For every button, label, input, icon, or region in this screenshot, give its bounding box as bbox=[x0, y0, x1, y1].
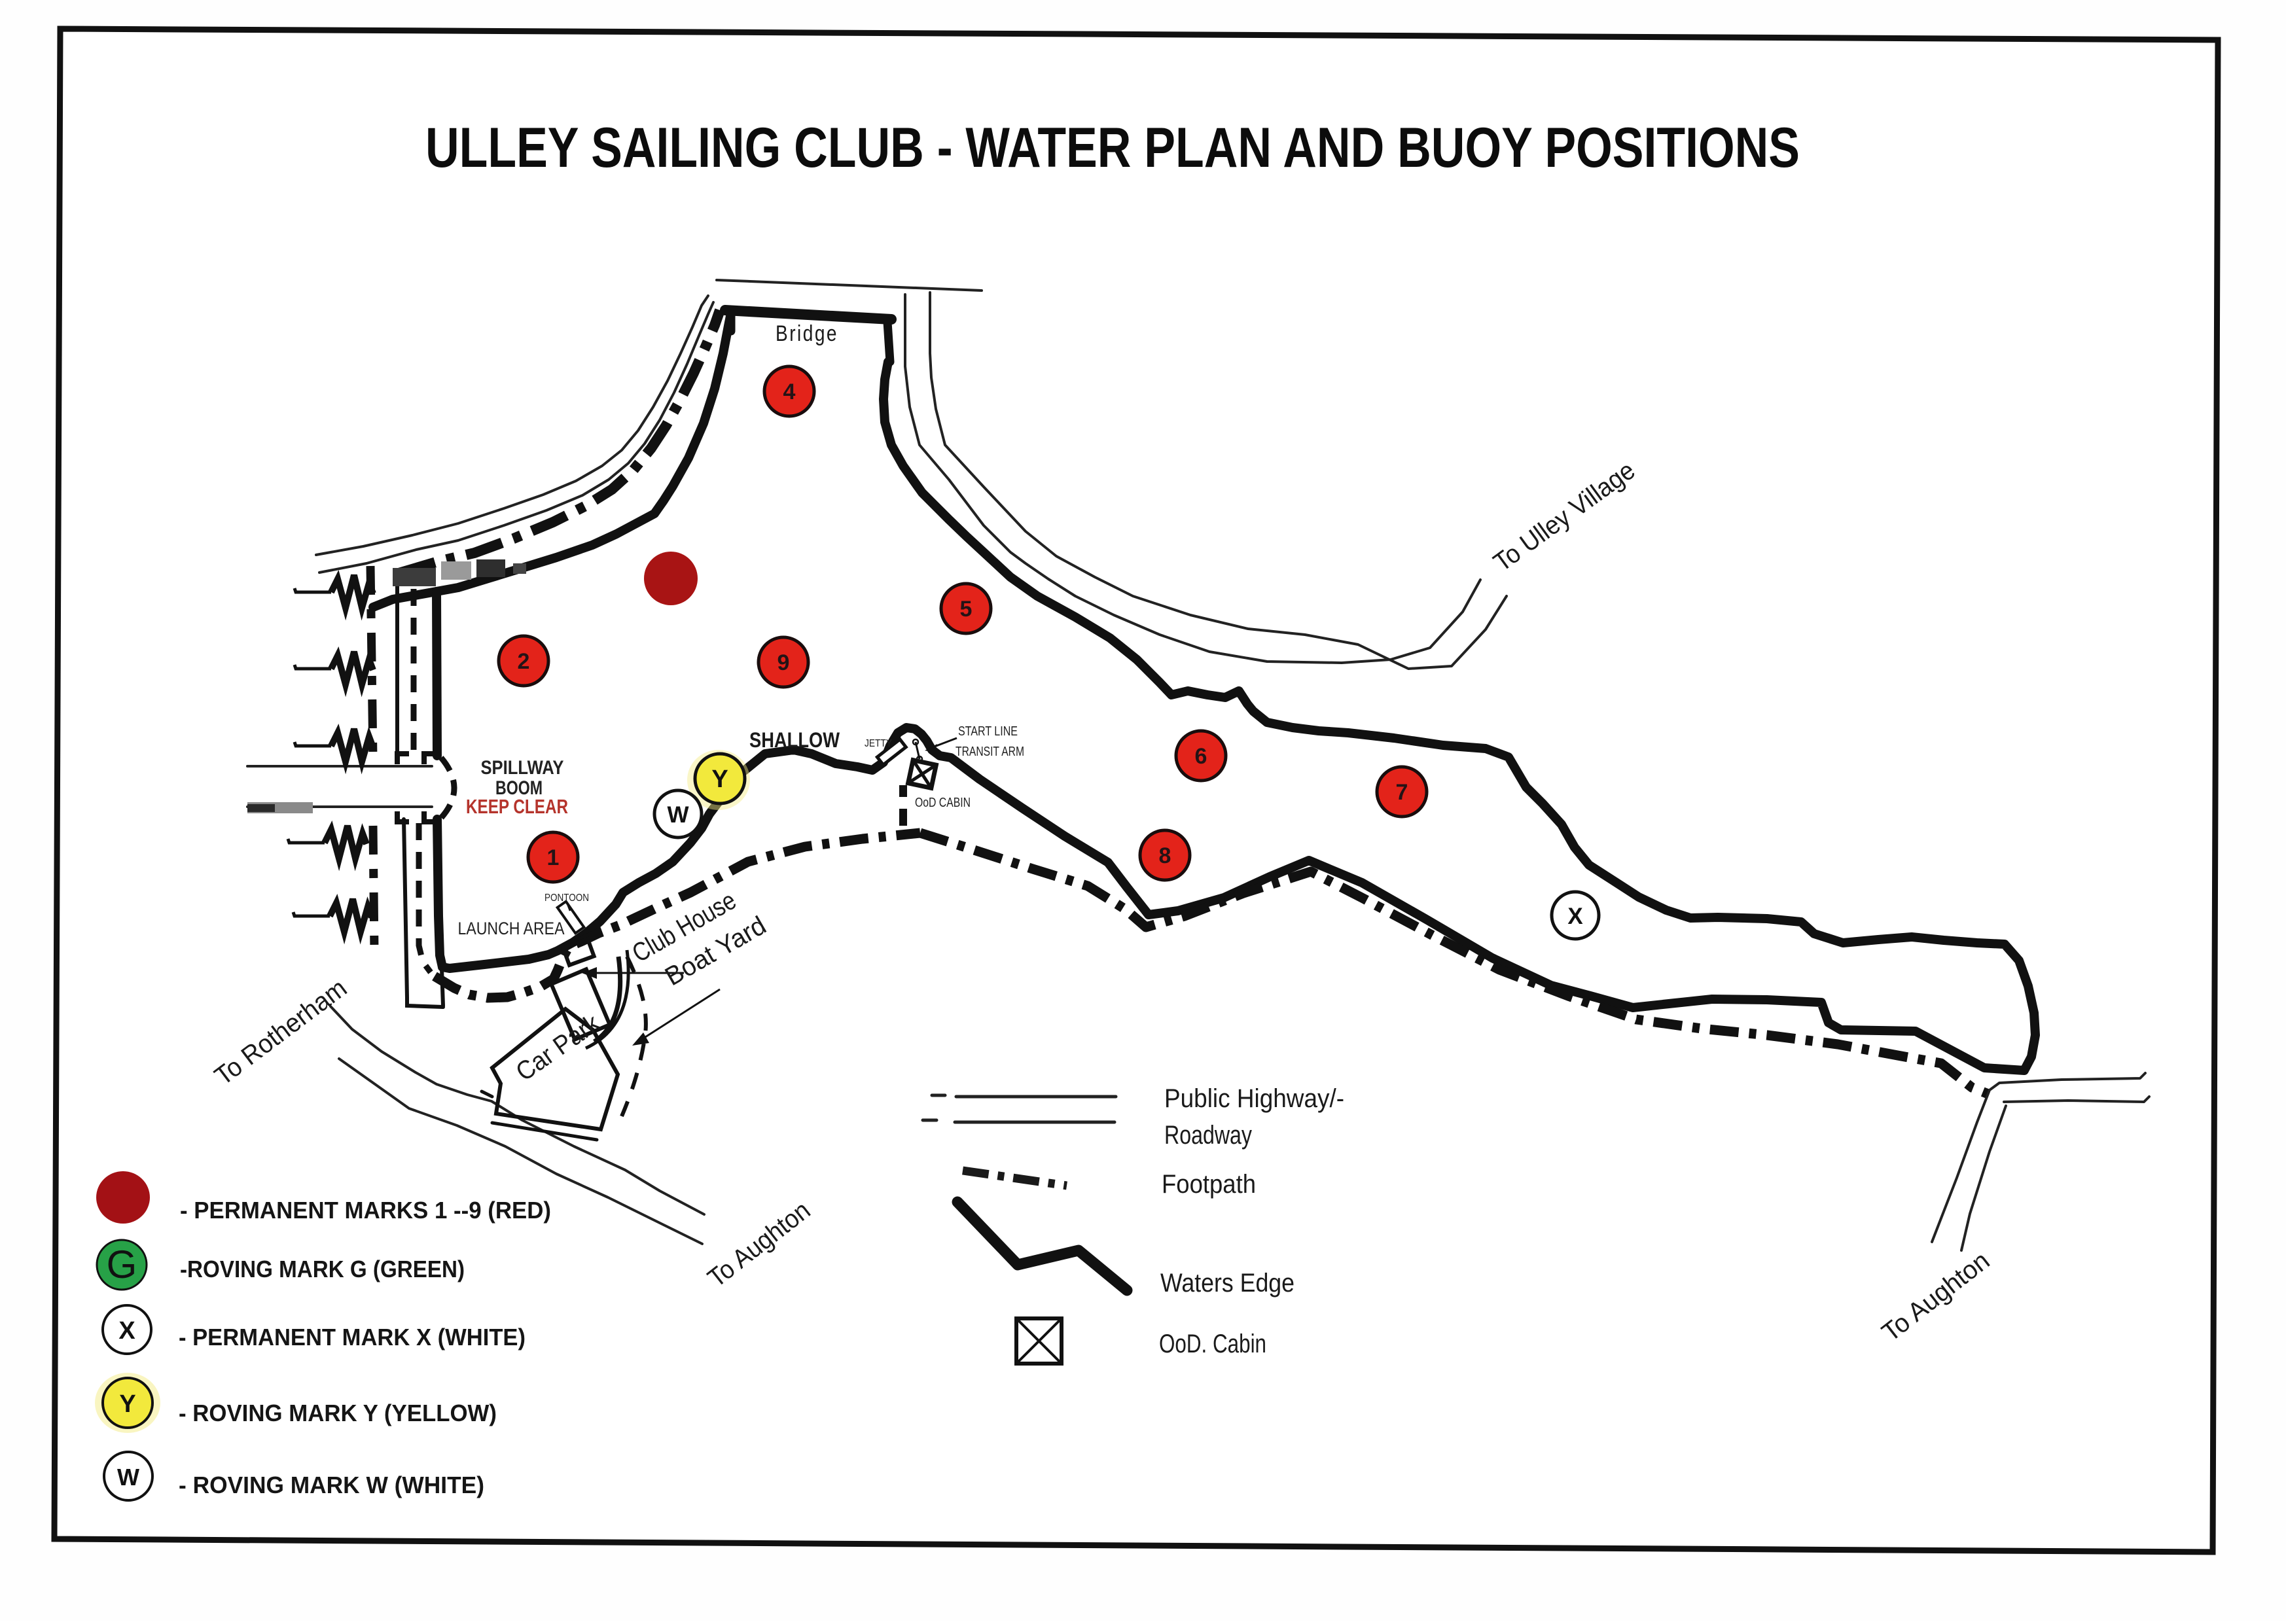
svg-text:SHALLOW: SHALLOW bbox=[749, 728, 840, 752]
svg-text:- PERMANENT MARK X (WHITE): - PERMANENT MARK X (WHITE) bbox=[179, 1324, 526, 1350]
svg-text:Waters Edge: Waters Edge bbox=[1160, 1269, 1295, 1297]
svg-text:OoD. Cabin: OoD. Cabin bbox=[1159, 1330, 1266, 1358]
svg-text:LAUNCH AREA: LAUNCH AREA bbox=[458, 919, 565, 938]
svg-text:9: 9 bbox=[777, 650, 790, 675]
svg-text:SPILLWAY: SPILLWAY bbox=[481, 757, 564, 779]
svg-text:4: 4 bbox=[783, 380, 796, 404]
svg-text:1: 1 bbox=[547, 845, 560, 870]
svg-text:G: G bbox=[107, 1243, 137, 1286]
svg-text:- ROVING MARK Y (YELLOW): - ROVING MARK Y (YELLOW) bbox=[179, 1400, 497, 1426]
svg-text:OoD CABIN: OoD CABIN bbox=[915, 796, 971, 810]
svg-text:W: W bbox=[667, 802, 688, 828]
svg-text:START LINE: START LINE bbox=[958, 724, 1018, 739]
svg-text:8: 8 bbox=[1159, 843, 1171, 868]
svg-text:- ROVING MARK W (WHITE): - ROVING MARK W (WHITE) bbox=[179, 1472, 484, 1498]
svg-text:2: 2 bbox=[518, 649, 530, 674]
svg-text:- PERMANENT MARKS 1 --9 (RED: - PERMANENT MARKS 1 --9 (RED) bbox=[180, 1197, 551, 1224]
svg-text:Public Highway/-: Public Highway/- bbox=[1164, 1084, 1344, 1113]
svg-text:TRANSIT ARM: TRANSIT ARM bbox=[955, 745, 1024, 759]
svg-text:X: X bbox=[118, 1317, 135, 1345]
svg-text:7: 7 bbox=[1396, 780, 1408, 805]
svg-text:5: 5 bbox=[960, 597, 973, 622]
svg-text:-ROVING MARK G (GREEN): -ROVING MARK G (GREEN) bbox=[180, 1256, 465, 1282]
svg-text:KEEP CLEAR: KEEP CLEAR bbox=[466, 795, 568, 818]
svg-text:Footpath: Footpath bbox=[1162, 1170, 1256, 1199]
svg-text:PONTOON: PONTOON bbox=[545, 892, 589, 904]
svg-text:6: 6 bbox=[1195, 744, 1207, 769]
svg-text:JETTY: JETTY bbox=[865, 738, 892, 749]
svg-text:W: W bbox=[117, 1464, 139, 1491]
svg-text:Roadway: Roadway bbox=[1164, 1121, 1252, 1150]
svg-text:Y: Y bbox=[119, 1390, 135, 1418]
svg-text:Bridge: Bridge bbox=[776, 321, 838, 346]
svg-text:Y: Y bbox=[711, 766, 728, 793]
svg-text:X: X bbox=[1567, 904, 1583, 929]
svg-text:ULLEY SAILING CLUB - WATER PLA: ULLEY SAILING CLUB - WATER PLAN AND BUOY… bbox=[425, 116, 1800, 179]
